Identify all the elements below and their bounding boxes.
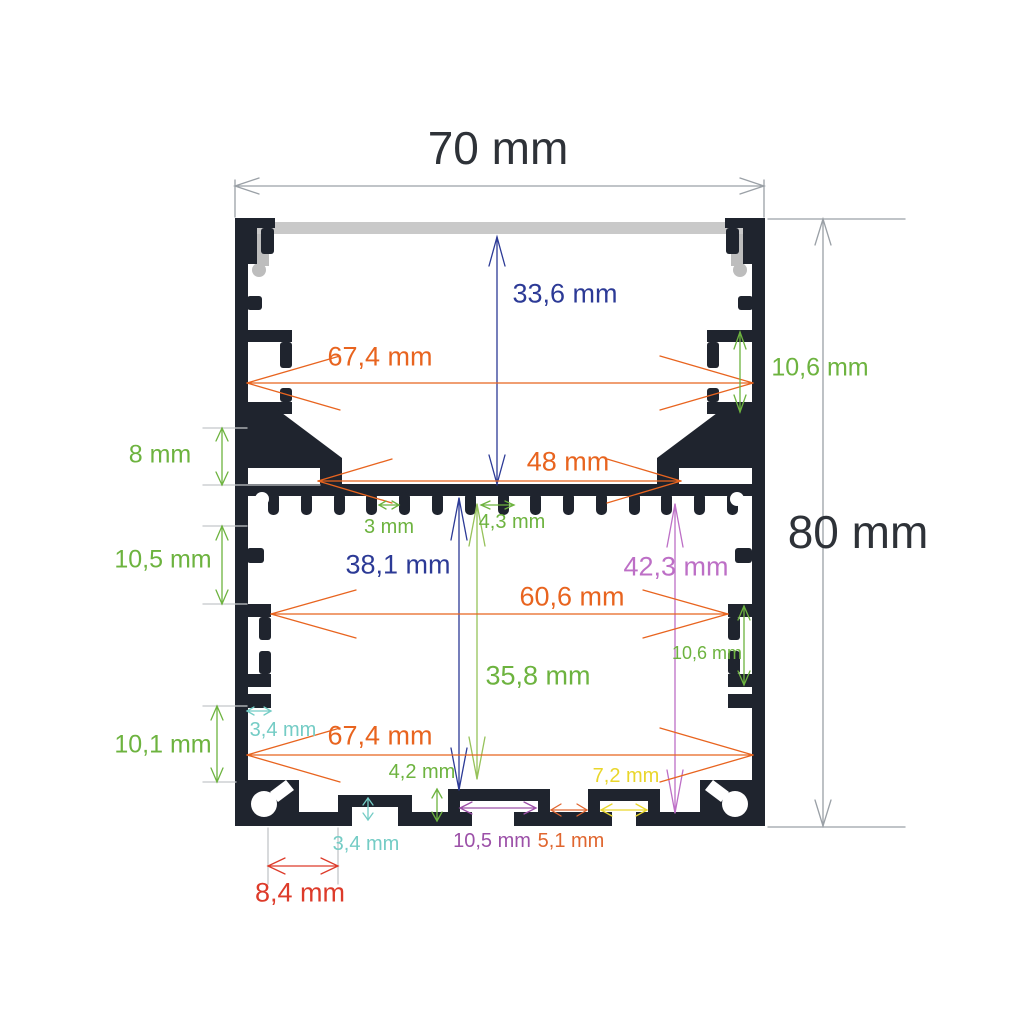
dim-gusset-height-label: 8 mm bbox=[129, 443, 192, 468]
dim-fin-gap-label: 3 mm bbox=[364, 517, 414, 537]
dim-channel-height-label: 4,2 mm bbox=[389, 762, 456, 782]
dim-channel-gap-label: 5,1 mm bbox=[538, 831, 605, 851]
dim-upper-pocket-lines bbox=[734, 332, 746, 412]
dim-overall-width-label: 70 mm bbox=[428, 125, 569, 171]
dim-overall-height-label: 80 mm bbox=[788, 509, 929, 555]
dim-lower-cavity-depth-label: 35,8 mm bbox=[485, 663, 590, 690]
dim-shelf-to-channel-lines bbox=[451, 498, 467, 790]
dim-lower-inner-width-lines bbox=[271, 590, 728, 638]
dim-top-cavity-label: 33,6 mm bbox=[512, 281, 617, 308]
dim-corner-boss-label: 8,4 mm bbox=[255, 880, 345, 907]
dim-lower-cavity-depth-lines bbox=[469, 504, 485, 779]
dim-lower-wall-segment-label: 10,1 mm bbox=[114, 733, 211, 758]
dim-shelf-to-channel-label: 38,1 mm bbox=[345, 552, 450, 579]
dim-channel-yellow-label: 7,2 mm bbox=[593, 766, 660, 786]
dim-upper-inner-width-lines bbox=[247, 356, 753, 410]
dim-corner-boss-lines bbox=[268, 828, 338, 884]
dim-channel-purple-label: 10,5 mm bbox=[453, 831, 531, 851]
dim-top-cavity-lines bbox=[489, 237, 505, 484]
dim-wall-step-label: 3,4 mm bbox=[250, 720, 317, 740]
dim-lower-full-width-lines bbox=[247, 728, 753, 782]
dim-upper-wall-segment-label: 10,5 mm bbox=[114, 548, 211, 573]
dim-upper-inner-width-label: 67,4 mm bbox=[327, 344, 432, 371]
dim-lower-pocket-label: 10,6 mm bbox=[672, 644, 742, 662]
dim-wall-step-lines bbox=[247, 707, 271, 715]
dim-channel-yellow-lines bbox=[601, 804, 647, 816]
dim-shelf-to-base-label: 42,3 mm bbox=[623, 554, 728, 581]
dim-lower-full-width-label: 67,4 mm bbox=[327, 723, 432, 750]
dim-shelf-opening-label: 48 mm bbox=[527, 449, 610, 476]
profile-dimension-drawing: 70 mm 80 mm 33,6 mm 67,4 mm 10,6 mm 8 mm… bbox=[0, 0, 1024, 1024]
dim-upper-pocket-label: 10,6 mm bbox=[771, 356, 868, 381]
dim-overall-width-lines bbox=[235, 178, 764, 217]
dim-fin-pitch-label: 4,3 mm bbox=[479, 512, 546, 532]
dim-lower-inner-width-label: 60,6 mm bbox=[519, 584, 624, 611]
dim-base-step-label: 3,4 mm bbox=[333, 834, 400, 854]
